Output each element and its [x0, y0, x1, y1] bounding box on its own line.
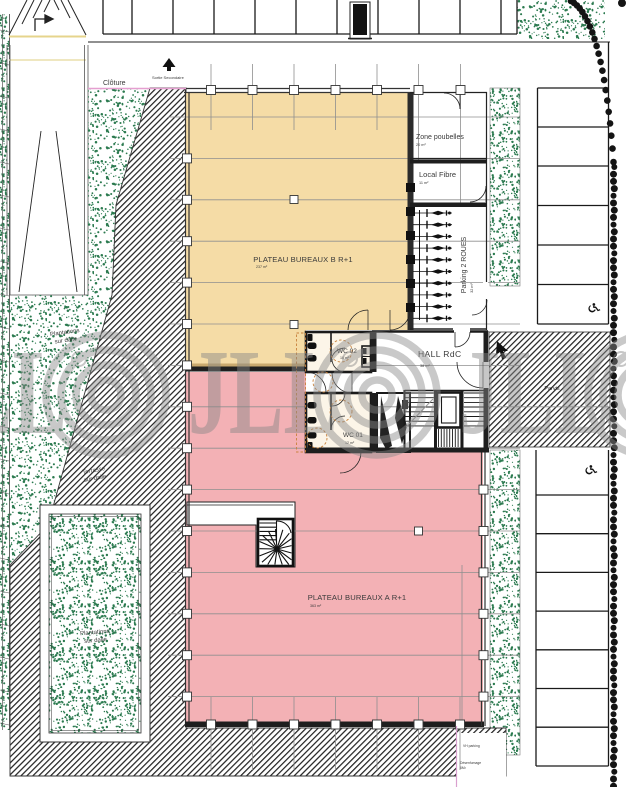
svg-text:PLATEAU BUREAUX A R+1: PLATEAU BUREAUX A R+1	[308, 593, 407, 602]
svg-text:VH parking: VH parking	[463, 744, 480, 748]
svg-text:11 m²: 11 m²	[419, 181, 429, 185]
svg-text:Parking 2 ROUES: Parking 2 ROUES	[461, 236, 468, 293]
svg-text:237 m²: 237 m²	[256, 265, 268, 269]
svg-text:Zone poubelles: Zone poubelles	[416, 134, 464, 141]
svg-text:Désenfumage: Désenfumage	[460, 761, 481, 765]
svg-text:Local Fibre: Local Fibre	[419, 170, 456, 179]
svg-text:PLATEAU BUREAUX B R+1: PLATEAU BUREAUX B R+1	[253, 255, 352, 264]
svg-text:20 m²: 20 m²	[416, 143, 426, 147]
svg-text:Clôture: Clôture	[103, 80, 126, 87]
svg-text:6M²: 6M²	[460, 766, 467, 770]
svg-text:Sortie Secondaire: Sortie Secondaire	[152, 75, 185, 80]
svg-text:363 m²: 363 m²	[310, 604, 322, 608]
svg-text:32 m²: 32 m²	[470, 282, 474, 292]
